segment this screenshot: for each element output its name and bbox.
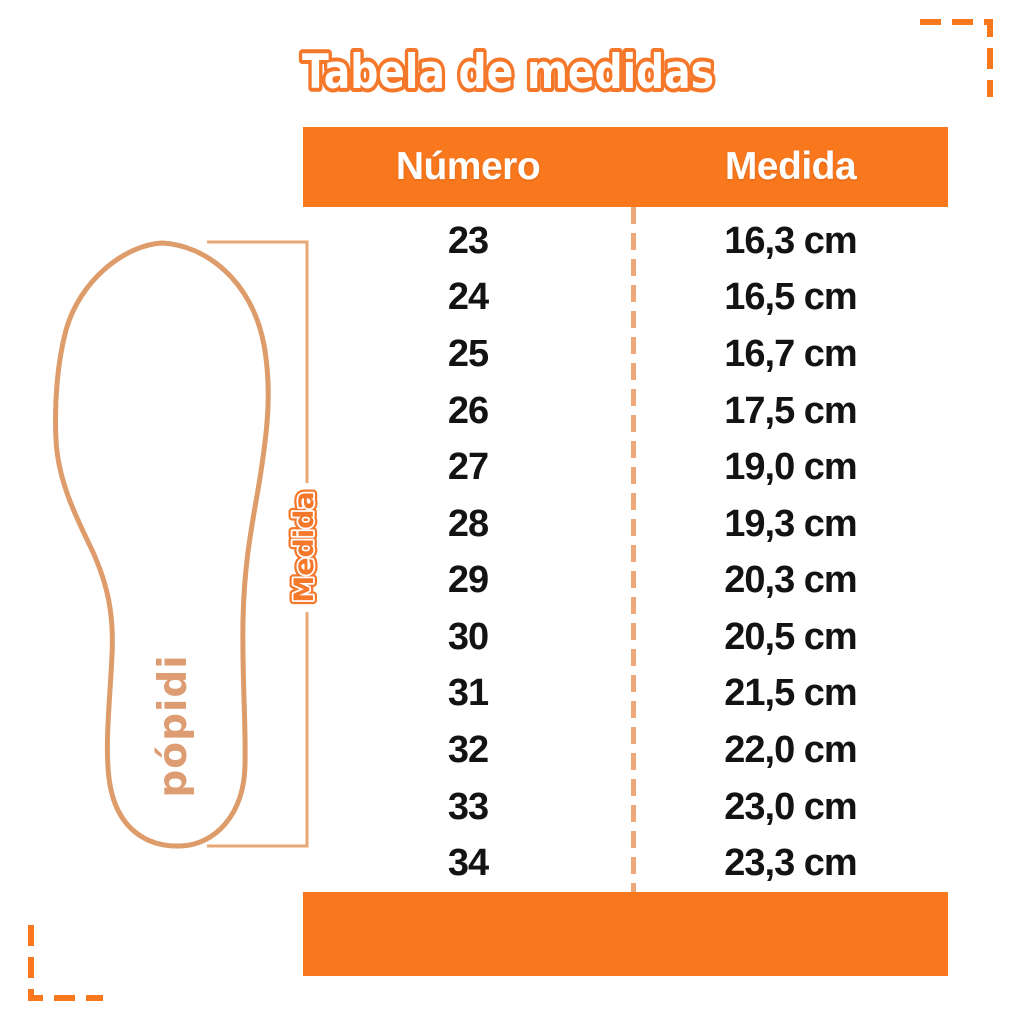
medida-cell: 22,0 cm (633, 729, 948, 772)
page-title: Tabela de medidas (302, 45, 714, 100)
numero-cell: 30 (303, 616, 633, 659)
medida-cell: 17,5 cm (633, 390, 948, 433)
medida-cell: 16,5 cm (633, 276, 948, 319)
column-divider-dashed-line (631, 207, 636, 892)
table-body: 23 16,3 cm 24 16,5 cm 25 16,7 cm 26 17,5… (303, 207, 948, 892)
numero-cell: 24 (303, 276, 633, 319)
table-row: 31 21,5 cm (303, 666, 948, 723)
medida-cell: 16,3 cm (633, 220, 948, 263)
table-row: 34 23,3 cm (303, 835, 948, 892)
table-row: 30 20,5 cm (303, 609, 948, 666)
measure-bracket (207, 242, 307, 846)
column-header-numero: Número (303, 145, 633, 189)
numero-cell: 33 (303, 786, 633, 829)
medida-cell: 23,0 cm (633, 786, 948, 829)
numero-cell: 34 (303, 842, 633, 885)
numero-cell: 31 (303, 672, 633, 715)
medida-cell: 19,3 cm (633, 503, 948, 546)
medida-cell: 21,5 cm (633, 672, 948, 715)
numero-cell: 25 (303, 333, 633, 376)
table-header: Número Medida (303, 127, 948, 207)
table-row: 27 19,0 cm (303, 439, 948, 496)
numero-cell: 26 (303, 390, 633, 433)
size-chart-infographic: Tabela de medidas Medida Medida Medida p… (0, 0, 1024, 1024)
corner-dashes-top-right (920, 22, 990, 97)
table-row: 32 22,0 cm (303, 722, 948, 779)
table-row: 28 19,3 cm (303, 496, 948, 553)
table-row: 26 17,5 cm (303, 383, 948, 440)
medida-cell: 19,0 cm (633, 446, 948, 489)
numero-cell: 23 (303, 220, 633, 263)
medida-cell: 20,3 cm (633, 559, 948, 602)
table-row: 23 16,3 cm (303, 213, 948, 270)
numero-cell: 28 (303, 503, 633, 546)
numero-cell: 27 (303, 446, 633, 489)
size-table: Número Medida 23 16,3 cm 24 16,5 cm 25 1… (303, 127, 948, 976)
table-row: 33 23,0 cm (303, 779, 948, 836)
table-footer-bar (303, 892, 948, 976)
medida-cell: 20,5 cm (633, 616, 948, 659)
numero-cell: 32 (303, 729, 633, 772)
corner-dashes-bottom-left (31, 925, 103, 998)
table-row: 29 20,3 cm (303, 552, 948, 609)
column-header-medida: Medida (633, 145, 948, 189)
svg-text:pópidi: pópidi (151, 654, 196, 797)
brand-logo: pópidi (151, 654, 196, 797)
medida-cell: 16,7 cm (633, 333, 948, 376)
insole-outline (55, 243, 268, 846)
table-row: 24 16,5 cm (303, 270, 948, 327)
numero-cell: 29 (303, 559, 633, 602)
table-row: 25 16,7 cm (303, 326, 948, 383)
medida-cell: 23,3 cm (633, 842, 948, 885)
